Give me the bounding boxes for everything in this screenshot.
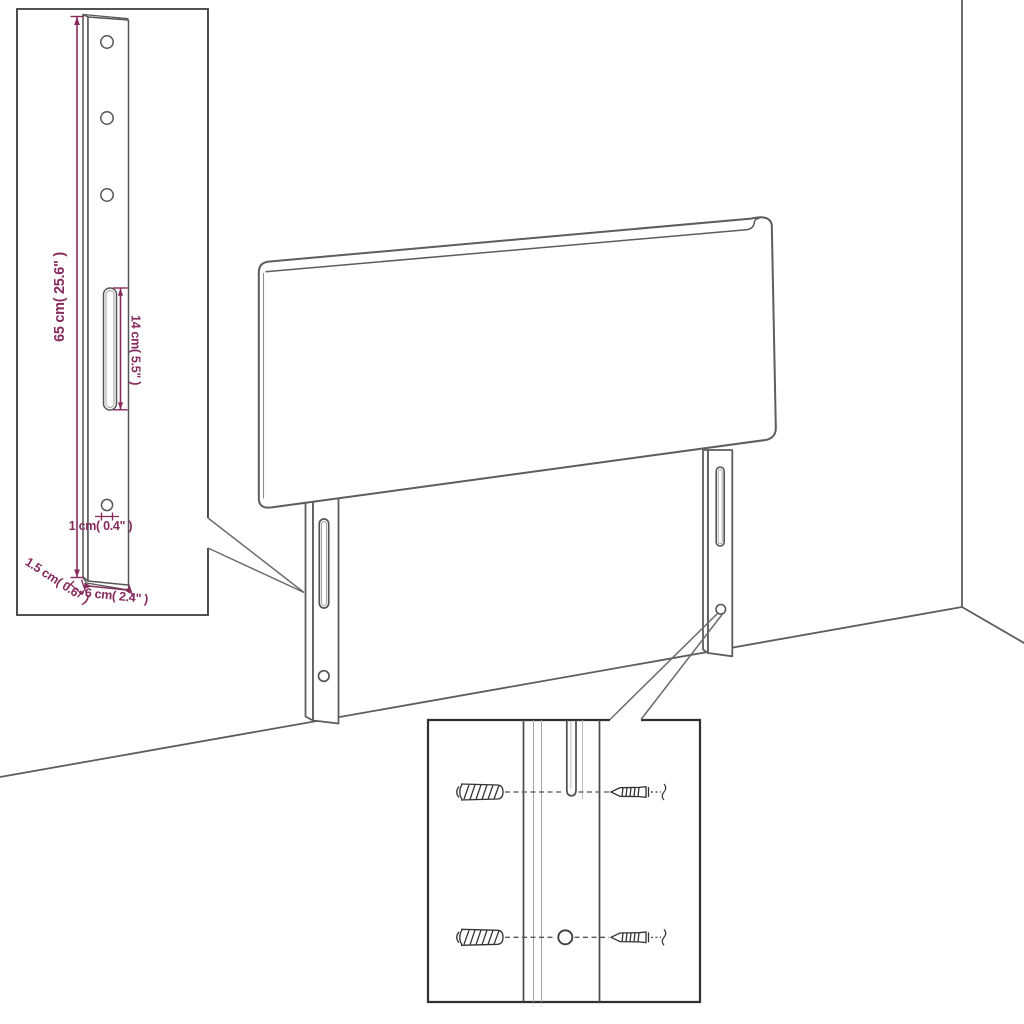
- headboard-panel-outline: [259, 217, 776, 507]
- leg-detail-hole-3: [101, 189, 113, 201]
- headboard-dimension-diagram: 65 cm( 25.6" ) 14 cm( 5.5" ) 1 cm( 0.4" …: [0, 0, 1024, 1024]
- leg-detail-inset: 65 cm( 25.6" ) 14 cm( 5.5" ) 1 cm( 0.4" …: [17, 9, 208, 615]
- left-leg-slot: [319, 519, 328, 608]
- floor-line-right: [962, 607, 1024, 644]
- left-leg-side-face: [306, 470, 314, 721]
- callout-wedge-left: [208, 518, 304, 593]
- mounting-detail-inset-box: [428, 720, 700, 1002]
- dimension-slot-length-label: 14 cm( 5.5" ): [129, 315, 143, 385]
- dimension-hole-diameter-label: 1 cm( 0.4" ): [69, 519, 133, 533]
- left-leg: [306, 470, 339, 724]
- leg-detail-bottom-hole: [101, 499, 112, 510]
- mounting-detail-inset: [428, 720, 700, 1002]
- leg-detail-slot: [104, 288, 117, 410]
- leg-detail-drawing: [83, 15, 129, 591]
- headboard-panel: [259, 217, 776, 507]
- left-leg-hole: [319, 671, 330, 682]
- leg-detail-hole-1: [101, 36, 113, 48]
- right-leg-slot: [716, 467, 724, 546]
- leg-detail-hole-2: [101, 112, 113, 124]
- diagram-stage: 65 cm( 25.6" ) 14 cm( 5.5" ) 1 cm( 0.4" …: [0, 0, 1024, 1024]
- dimension-leg-height-label: 65 cm( 25.6" ): [52, 252, 68, 342]
- right-leg: [703, 450, 732, 656]
- right-leg-hole: [716, 605, 726, 615]
